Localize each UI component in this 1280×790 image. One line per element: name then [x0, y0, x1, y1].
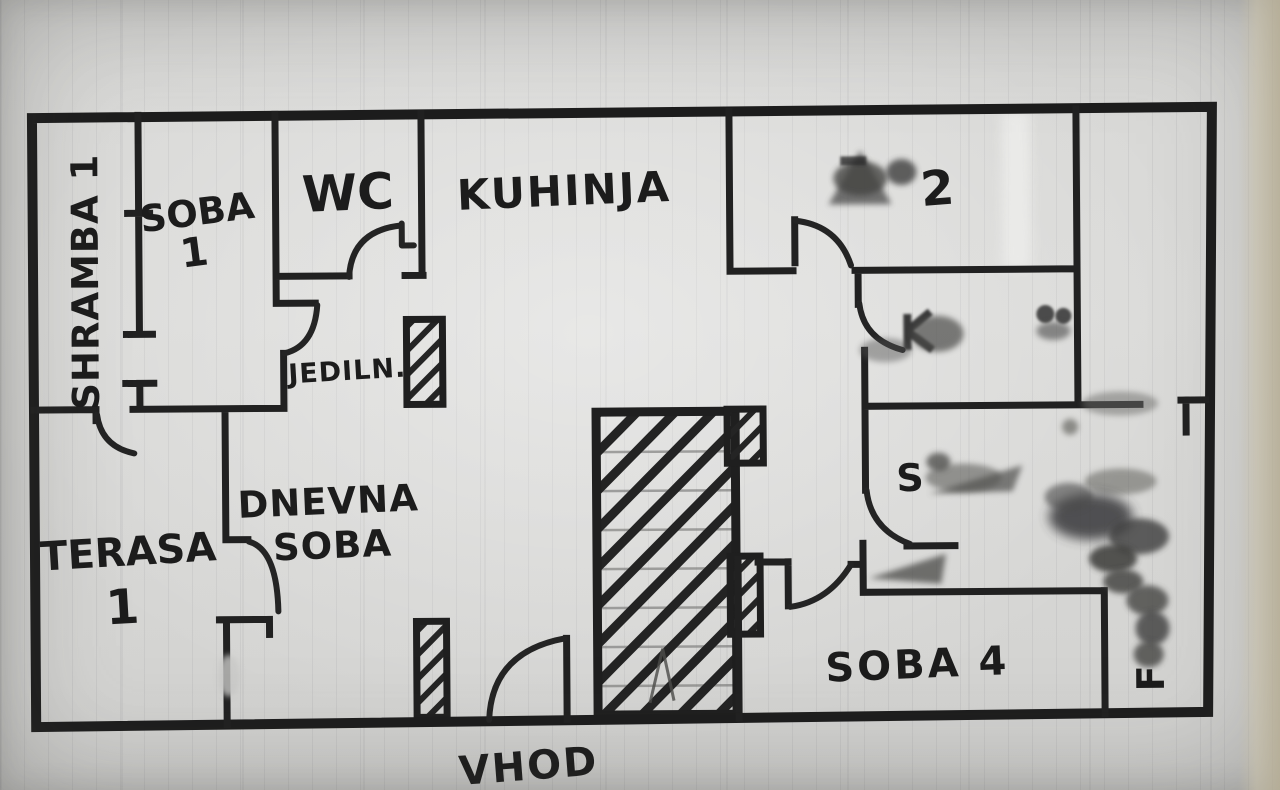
room-label-dnevna-line1: DNEVNA	[237, 476, 420, 527]
room-label-terasa1-number: 1	[104, 579, 141, 637]
redaction-smudge-soba2	[828, 150, 916, 205]
pier-staircase-top	[727, 409, 763, 463]
room-label-terasa1: TERASA	[39, 524, 218, 580]
floor-plan-drawing: SHRAMBA 1 SOBA 1 WC KUHINJA 2 JEDILN. DN…	[0, 0, 1280, 790]
redaction-smudge-room-k	[907, 304, 1158, 417]
floor-plan-photo: SHRAMBA 1 SOBA 1 WC KUHINJA 2 JEDILN. DN…	[0, 0, 1280, 790]
room-label-soba3-letter: S	[895, 455, 924, 500]
room-label-soba1-number: 1	[178, 228, 212, 277]
pier-entrance	[416, 621, 447, 717]
room-label-wc: WC	[301, 162, 395, 224]
room-label-soba2-digit: 2	[919, 160, 957, 218]
eraser-smudge-terasa-wall	[218, 655, 240, 697]
room-label-kuhinja: KUHINJA	[456, 162, 672, 220]
redaction-smudge-soba3	[925, 452, 1022, 494]
pier-jedilnica	[406, 319, 443, 404]
room-label-soba4: SOBA 4	[824, 638, 1010, 692]
entrance-label: VHOD	[457, 738, 600, 790]
room-label-dnevna-line2: SOBA	[272, 522, 393, 570]
room-label-jedilnica: JEDILN.	[285, 352, 407, 390]
room-label-strip-letter: F	[1129, 665, 1173, 691]
redaction-smudge-strip-label	[1126, 585, 1170, 667]
paper-shine	[1002, 111, 1031, 269]
room-label-shramba1: SHRAMBA 1	[63, 154, 108, 410]
door-arcs	[96, 220, 911, 723]
